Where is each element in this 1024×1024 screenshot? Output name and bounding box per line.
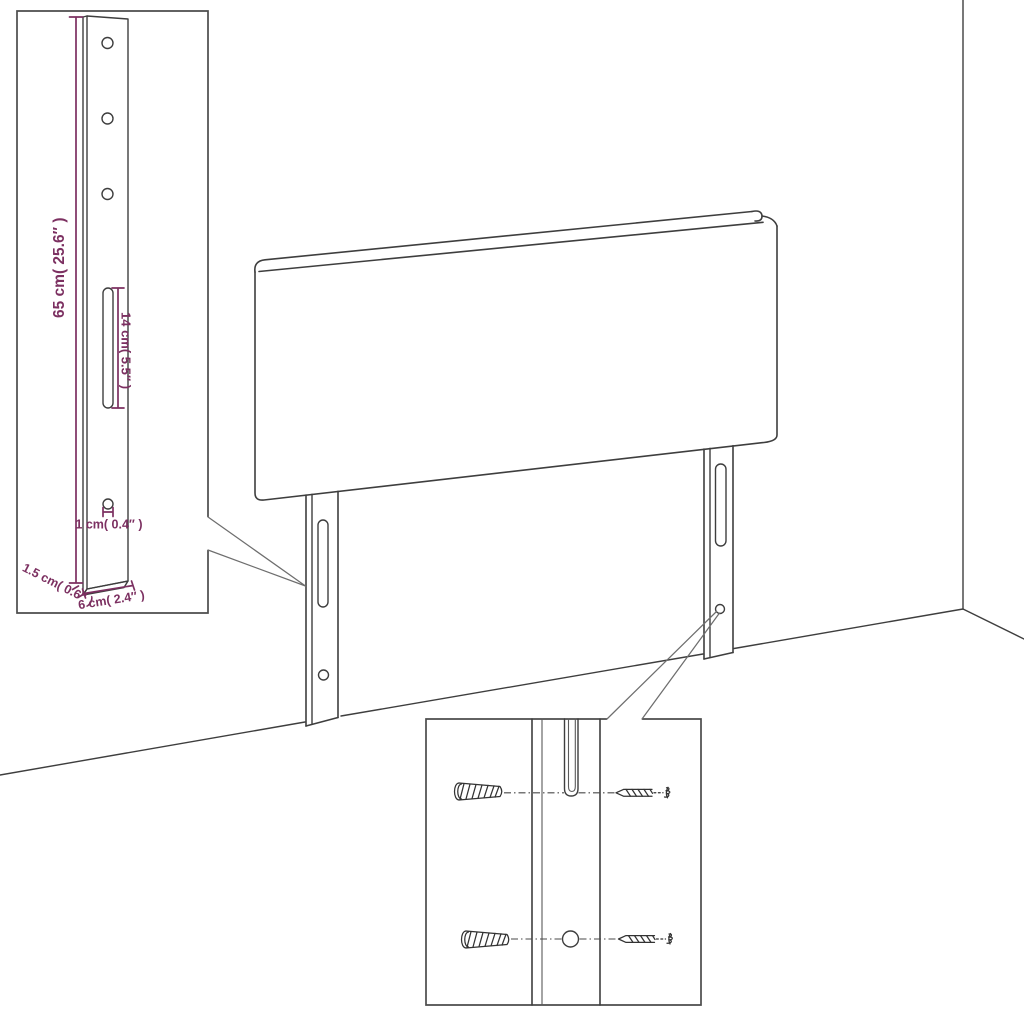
dimension-label-1cm: 1 cm( 0.4″ ) bbox=[75, 518, 142, 532]
screw-top bbox=[616, 787, 670, 798]
leg-closeup bbox=[532, 719, 600, 1005]
dimension-label-14cm: 14 cm( 5.5″ ) bbox=[119, 312, 134, 389]
headboard-top-edge-inner bbox=[259, 222, 763, 271]
left-leg-screw-hole bbox=[319, 670, 329, 680]
dimension-bracket-thickness: 1.5 cm( 0.6″ ) bbox=[20, 561, 95, 609]
headboard-top-right-curl bbox=[752, 211, 762, 221]
dimension-bracket-height: 65 cm( 25.6″ ) bbox=[51, 17, 83, 583]
dimension-hole-diameter: 1 cm( 0.4″ ) bbox=[75, 508, 142, 532]
bracket-detail-inset: 65 cm( 25.6″ ) 14 cm( 5.5″ ) 1 cm( 0.4″ … bbox=[17, 11, 306, 613]
left-mounting-leg bbox=[306, 491, 338, 726]
right-leg-screw-hole bbox=[716, 605, 725, 614]
dimension-slot-length: 14 cm( 5.5″ ) bbox=[112, 288, 134, 408]
wall-plug-bottom bbox=[462, 931, 509, 948]
bracket-slot bbox=[103, 288, 113, 408]
headboard-assembly-diagram: 65 cm( 25.6″ ) 14 cm( 5.5″ ) 1 cm( 0.4″ … bbox=[0, 0, 1024, 1024]
bracket-hole-1 bbox=[102, 38, 113, 49]
left-leg-bottom-edge bbox=[306, 718, 338, 727]
assembly-diagram-page: 65 cm( 25.6″ ) 14 cm( 5.5″ ) 1 cm( 0.4″ … bbox=[0, 0, 1024, 1024]
bracket-drawing bbox=[83, 16, 128, 595]
dimension-label-65cm: 65 cm( 25.6″ ) bbox=[51, 218, 68, 318]
mounting-detail-inset bbox=[426, 612, 720, 1006]
bracket-inset-callout-pointer bbox=[208, 517, 306, 586]
headboard-top-right-shoulder bbox=[762, 216, 777, 226]
floor-line-right bbox=[963, 609, 1024, 639]
mounting-inset-callout-pointer bbox=[607, 612, 720, 720]
hole-closeup bbox=[563, 931, 579, 947]
slot-closeup-inner bbox=[569, 719, 576, 792]
room-corner bbox=[0, 0, 1024, 775]
left-leg-slot bbox=[318, 520, 328, 607]
right-leg-slot bbox=[716, 464, 727, 546]
headboard-front-face bbox=[255, 226, 777, 500]
bracket-front-face bbox=[87, 16, 128, 589]
right-mounting-leg bbox=[704, 446, 733, 659]
bracket-hole-2 bbox=[102, 113, 113, 124]
bracket-small-hole bbox=[103, 499, 113, 509]
screw-bottom bbox=[619, 934, 673, 945]
bracket-hole-3 bbox=[102, 189, 113, 200]
right-leg-bottom-edge bbox=[704, 653, 733, 660]
headboard-top-edge-outer bbox=[255, 212, 752, 273]
dimension-line-65cm bbox=[70, 17, 83, 583]
headboard bbox=[255, 211, 777, 500]
dimension-label-1-5cm: 1.5 cm( 0.6″ ) bbox=[20, 561, 95, 609]
mounting-inset-border bbox=[426, 719, 701, 1005]
floor-line-left bbox=[0, 609, 963, 775]
wall-plug-top bbox=[455, 783, 502, 800]
slot-closeup-outer bbox=[565, 719, 579, 796]
